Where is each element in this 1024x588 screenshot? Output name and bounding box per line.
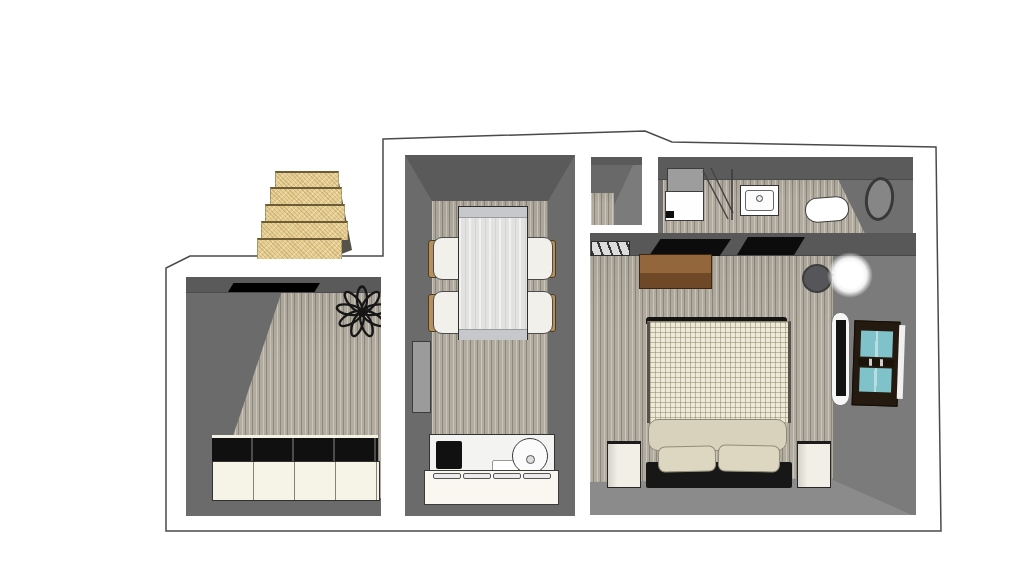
table-end-cap	[459, 207, 527, 218]
dining-door	[412, 341, 431, 413]
sink-drain	[526, 455, 535, 464]
bed-duvet	[647, 321, 791, 423]
washbasin	[740, 185, 779, 216]
kitchen-dining-room	[405, 155, 575, 516]
round-sink	[512, 438, 548, 474]
window-pane	[860, 330, 893, 357]
wardrobe-top-slab	[212, 435, 378, 464]
floorplan-canvas	[0, 0, 1024, 588]
drawer-handle	[433, 473, 461, 479]
toilet	[804, 195, 850, 223]
hallway-wall-stub	[591, 157, 642, 225]
pillow	[658, 445, 716, 472]
nightstand	[607, 441, 641, 488]
faucet-icon	[756, 195, 763, 202]
drawer-handle	[463, 473, 491, 479]
curtain-shadow	[836, 320, 846, 396]
north-window	[737, 237, 805, 255]
closet-room	[186, 277, 381, 516]
stair-step-5	[257, 238, 342, 259]
counter-cabinet-front	[424, 470, 559, 505]
drawer-handle	[493, 473, 521, 479]
glowing-light	[827, 252, 873, 298]
dresser	[639, 254, 712, 289]
shower-glass-icon	[702, 167, 736, 223]
stub-floor-strip	[591, 193, 614, 225]
drawer-handle	[523, 473, 551, 479]
bathroom	[658, 157, 913, 236]
shower-drain	[666, 211, 674, 218]
window-rail	[858, 358, 894, 366]
staircase	[255, 168, 355, 260]
louver-vent	[591, 241, 630, 256]
wardrobe-cabinet-row	[212, 461, 380, 501]
oval-mirror	[862, 175, 896, 222]
dining-north-wall	[405, 155, 575, 201]
window-teal	[852, 320, 901, 407]
cooktop	[436, 441, 462, 469]
bedroom	[590, 233, 916, 515]
nightstand	[797, 441, 831, 488]
plant-icon	[334, 284, 381, 340]
stub-top-edge	[591, 157, 642, 165]
window-pane	[859, 367, 892, 392]
dining-table	[458, 206, 528, 340]
table-end-cap	[459, 329, 527, 340]
closet-wall-shadow	[228, 283, 320, 292]
pillow	[718, 444, 780, 472]
